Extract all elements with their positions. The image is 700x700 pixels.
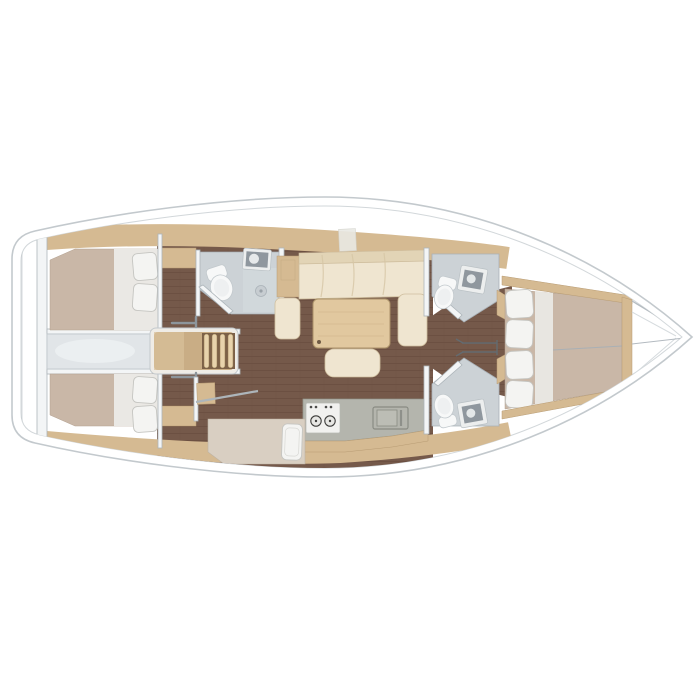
pillow <box>505 350 533 379</box>
deck-hatch <box>338 229 356 252</box>
sink-icon <box>242 248 271 271</box>
step-rung <box>220 334 225 368</box>
pillow <box>132 405 158 433</box>
stove-knob <box>330 406 333 409</box>
stove-knob <box>310 406 313 409</box>
yacht-floor-plan <box>0 0 700 700</box>
saloon-side-locker <box>277 256 299 297</box>
steps-landing <box>154 332 184 370</box>
sink-icon <box>457 399 488 428</box>
forward-bulkhead-port <box>424 248 429 316</box>
stove-knob <box>315 406 318 409</box>
pillow <box>132 376 158 404</box>
table-leg-dot <box>317 340 321 344</box>
step-rung <box>228 334 233 368</box>
sofa-end-seat <box>275 298 300 339</box>
sink-icon <box>457 265 488 294</box>
pillow <box>505 319 533 348</box>
sink-basin <box>377 410 397 426</box>
aft-port-locker <box>161 248 196 268</box>
engine-box-highlight <box>55 339 135 363</box>
forward-cabin <box>502 276 632 419</box>
step-rung <box>204 334 209 368</box>
sofa-seat <box>299 261 426 299</box>
saloon-bench <box>325 349 380 377</box>
step-rung <box>212 334 217 368</box>
burner-dot <box>315 420 317 422</box>
galley <box>303 399 428 452</box>
pillow <box>505 289 534 319</box>
burner-dot <box>329 420 331 422</box>
pillow <box>505 380 534 409</box>
stove-knob <box>325 406 328 409</box>
sofa-return-seat <box>398 294 427 346</box>
vberth-sheet <box>535 291 553 408</box>
aft-starboard-locker <box>161 406 196 426</box>
shower-drain-dot <box>259 289 262 292</box>
forward-bulkhead-starboard <box>424 366 429 434</box>
aft-head-wall-left <box>196 250 200 316</box>
pillow <box>132 252 158 281</box>
pillow <box>281 424 302 461</box>
pillow <box>132 283 158 312</box>
stern-bulkhead <box>37 231 47 446</box>
